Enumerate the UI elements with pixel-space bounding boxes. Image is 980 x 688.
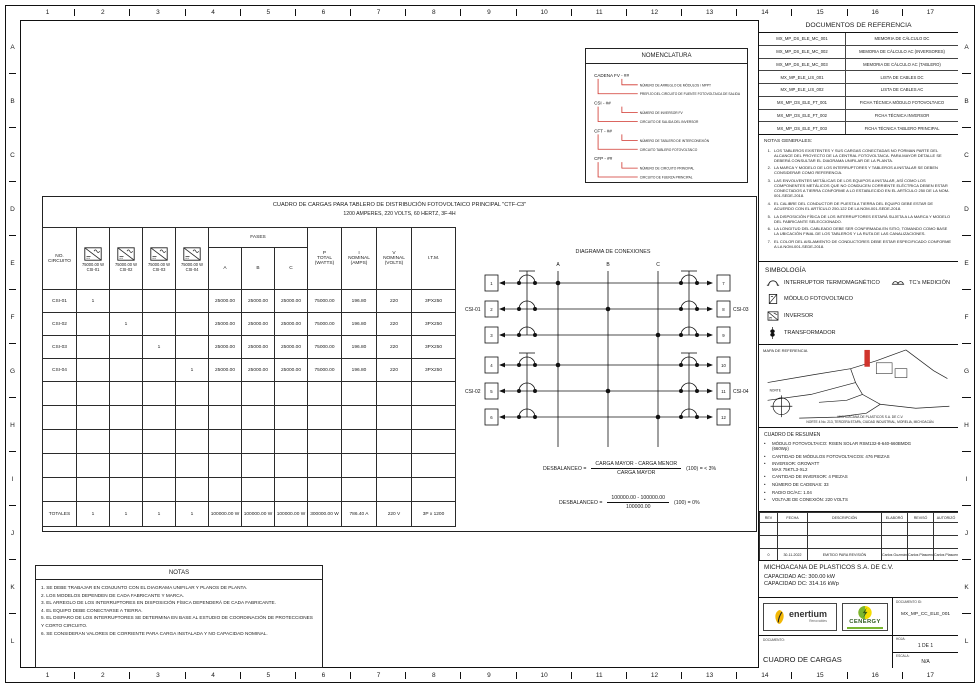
ref-doc-desc: FICHA TÉCNICA INVERSOR <box>846 110 958 122</box>
north-compass-icon: NORTE <box>770 388 793 417</box>
summary-item: •NÚMERO DE CADENAS: 33 <box>764 482 953 488</box>
col-header-itm: I.T.M. <box>412 228 456 290</box>
ref-doc-desc: FICHA TÉCNICA MÓDULO FOTOVOLTAICO <box>846 97 958 109</box>
grid-row-label: I <box>958 452 975 506</box>
empty-row <box>43 454 456 478</box>
empty-cell <box>342 382 377 406</box>
ref-doc-row: MX_MP_DS_ELE_MC_001MEMORIA DE CÁLCULO DC <box>759 33 958 46</box>
general-note: 7.EL COLOR DEL AISLAMIENTO DE CONDUCTORE… <box>764 239 953 249</box>
summary-text: MÓDULO FOTOVOLTAICO: RISEN SOLAR RSM132-… <box>772 441 911 452</box>
symbol-label: INVERSOR <box>784 313 813 319</box>
revision-header: REV <box>760 513 778 523</box>
grid-col-label: 4 <box>186 668 241 683</box>
grid-col-label: 5 <box>241 5 296 20</box>
svg-text:CIRCUITO DE FUERZA PRINCIPAL: CIRCUITO DE FUERZA PRINCIPAL <box>640 176 693 180</box>
sheet-value: 1 DE 1 <box>896 643 955 649</box>
empty-cell <box>209 454 242 478</box>
document-id-value: MX_MP_CC_ELE_001 <box>896 612 955 617</box>
revision-cell: Carlos Plascencia <box>908 549 934 562</box>
document-label: DOCUMENTO: <box>763 638 888 642</box>
empty-cell <box>110 430 143 454</box>
circuit-id: CSI-03 <box>43 336 77 359</box>
value-cell: 3PX250 <box>412 290 456 313</box>
grid-strip-right: ABCDEFGHIJKL <box>958 20 975 668</box>
col-header-fases: FASES <box>209 228 308 248</box>
empty-cell <box>110 382 143 406</box>
totals-inverter: 1 <box>110 502 143 527</box>
empty-cell <box>209 382 242 406</box>
inverter-mark <box>110 290 143 313</box>
empty-cell <box>110 406 143 430</box>
revision-cell <box>882 523 908 536</box>
grid-strip-top: 1234567891011121314151617 <box>20 5 958 20</box>
ref-doc-code: MX_MP_DS_ELE_MC_002 <box>759 46 846 58</box>
svg-text:PREFIJO DEL CIRCUITO DE FUENTE: PREFIJO DEL CIRCUITO DE FUENTE FOTOVOLTA… <box>640 92 741 96</box>
svg-text:CSI-02: CSI-02 <box>465 389 481 395</box>
empty-cell <box>176 406 209 430</box>
inverter-mark: 1 <box>176 359 209 382</box>
map-caption-line1: MICHOACANA DE PLASTICOS S.A. DE C.V. <box>837 415 903 419</box>
inverter-mark <box>143 359 176 382</box>
grid-col-label: 8 <box>406 668 461 683</box>
site-marker-icon <box>864 350 869 367</box>
engineering-drawing-sheet: { "border": { "cols": ["1","2","3","4","… <box>0 0 980 688</box>
ref-doc-row: MX_MP_ELE_LIS_002LISTA DE CABLES AC <box>759 84 958 97</box>
note-item: 5. EL DISPARO DE LOS INTERRUPTORES SE DE… <box>41 614 317 629</box>
empty-cell <box>77 430 110 454</box>
grid-strip-left: ABCDEFGHIJKL <box>5 20 20 668</box>
svg-text:9: 9 <box>722 333 725 338</box>
grid-row-label: A <box>5 20 20 74</box>
revision-header: ELABORÓ <box>882 513 908 523</box>
bullet-icon: • <box>764 441 768 452</box>
ref-doc-row: MX_MP_DS_ELE_FT_003FICHA TÉCNICA TABLERO… <box>759 122 958 135</box>
reference-documents-table: MX_MP_DS_ELE_MC_001MEMORIA DE CÁLCULO DC… <box>759 33 958 135</box>
revision-header: AUTORIZÓ <box>934 513 959 523</box>
svg-text:CSI-01: CSI-01 <box>465 307 481 313</box>
nomenclatura-box: NOMENCLATURA CADENA FV - ##NÚMERO DE ARR… <box>585 48 748 183</box>
symbology-list: INTERRUPTOR TERMOMAGNÉTICOTC's MEDICIÓNM… <box>765 278 952 345</box>
summary-item: •RADIO DC/AC: 1.04 <box>764 490 953 496</box>
ref-doc-code: MX_MP_DS_ELE_FT_001 <box>759 97 846 109</box>
value-cell: 25000.00 <box>275 336 308 359</box>
revision-cell: EMITIDO PARA REVISIÓN <box>808 549 882 562</box>
revision-table: REVFECHADESCRIPCIÓNELABORÓREVISÓAUTORIZÓ… <box>759 512 958 561</box>
revision-cell <box>934 536 959 549</box>
grid-col-label: 10 <box>517 5 572 20</box>
circuit-row: CSI-02125000.0025000.0025000.0075000.001… <box>43 313 456 336</box>
summary-text: INVERSOR: GROWATT MAX 75KTL3-XL2 <box>772 461 819 472</box>
empty-cell <box>176 454 209 478</box>
empty-cell <box>275 382 308 406</box>
circuit-row: CSI-01125000.0025000.0025000.0075000.001… <box>43 290 456 313</box>
enertium-logo: enertium Renovables <box>763 603 837 631</box>
grid-col-label: 3 <box>130 668 185 683</box>
col-header-phase: B <box>242 248 275 290</box>
circuit-id: CSI-01 <box>43 290 77 313</box>
inverter-icon <box>765 311 780 321</box>
ref-doc-code: MX_MP_DS_ELE_FT_003 <box>759 122 846 135</box>
value-cell: 25000.00 <box>209 336 242 359</box>
empty-cell <box>342 454 377 478</box>
empty-cell <box>308 406 342 430</box>
revision-cell <box>778 523 808 536</box>
grid-strip-bottom: 1234567891011121314151617 <box>20 668 958 683</box>
svg-text:NÚMERO DE ARREGLO DE MÓDULOS /: NÚMERO DE ARREGLO DE MÓDULOS / MPPT <box>640 82 711 87</box>
note-item: 4. EL EQUIPO DEBE CONECTARSE A TIERRA. <box>41 607 317 615</box>
ref-doc-code: MX_MP_DS_ELE_MC_003 <box>759 59 846 71</box>
totals-inverter: 1 <box>143 502 176 527</box>
svg-text:4: 4 <box>490 363 493 368</box>
empty-cell <box>412 478 456 502</box>
reference-map-title: MAPA DE REFERENCIA <box>763 348 807 353</box>
logo-row: enertium Renovables CENERGY DOCUMENTO ID… <box>759 598 958 636</box>
svg-text:NÚMERO DE CIRCUITO PRINCIPAL: NÚMERO DE CIRCUITO PRINCIPAL <box>640 166 695 171</box>
grid-col-label: 15 <box>792 5 847 20</box>
ref-doc-desc: MEMORIA DE CÁLCULO DC <box>846 33 958 45</box>
numerator: 100000.00 - 100000.00 <box>607 495 669 503</box>
symbology-section: SIMBOLOGÍA INTERRUPTOR TERMOMAGNÉTICOTC'… <box>759 262 958 345</box>
value-cell: 196.80 <box>342 359 377 382</box>
grid-col-label: 5 <box>241 668 296 683</box>
capacity-dc: CAPACIDAD DC: 314.16 kWp <box>764 581 953 589</box>
value-cell: 220 <box>377 313 412 336</box>
ref-doc-row: MX_MP_DS_ELE_FT_002FICHA TÉCNICA INVERSO… <box>759 110 958 123</box>
empty-cell <box>377 406 412 430</box>
summary-item: •INVERSOR: GROWATT MAX 75KTL3-XL2 <box>764 461 953 472</box>
circuit-id: CSI-02 <box>43 313 77 336</box>
grid-row-label: D <box>958 182 975 236</box>
note-item: 6. SE CONSIDERAN VALORES DE CORRIENTE PA… <box>41 630 317 638</box>
note-text: LA DISPOSICIÓN FÍSICA DE LOS INTERRUPTOR… <box>774 214 953 224</box>
ref-doc-row: MX_MP_DS_ELE_MC_003MEMORIA DE CÁLCULO AC… <box>759 59 958 72</box>
denominator: CARGA MAYOR <box>617 469 655 476</box>
grid-col-label: 15 <box>792 668 847 683</box>
general-note: 6.LA LONGITUD DEL CABLEADO DEBE SER CONF… <box>764 226 953 236</box>
revision-cell: 30-11-2022 <box>778 549 808 562</box>
empty-cell <box>412 406 456 430</box>
totals-value: 300000.00 W <box>308 502 342 527</box>
reference-documents-section: DOCUMENTOS DE REFERENCIA MX_MP_DS_ELE_MC… <box>759 20 958 135</box>
ref-doc-desc: MEMORIA DE CÁLCULO AC (INVERSORES) <box>846 46 958 58</box>
empty-cell <box>242 454 275 478</box>
bullet-icon: • <box>764 461 768 472</box>
inverter-mark <box>176 336 209 359</box>
general-note: 4.EL CALIBRE DEL CONDUCTOR DE PUESTA A T… <box>764 201 953 211</box>
load-table-title: CUADRO DE CARGAS PARA TABLERO DE DISTRIB… <box>43 202 756 208</box>
empty-cell <box>176 430 209 454</box>
empty-cell <box>209 406 242 430</box>
inverter-mark <box>77 359 110 382</box>
ref-doc-desc: FICHA TÉCNICA TABLERO PRINCIPAL <box>846 122 958 135</box>
value-cell: 220 <box>377 336 412 359</box>
company-logos: enertium Renovables CENERGY <box>759 598 892 635</box>
empty-cell <box>308 382 342 406</box>
value-cell: 75000.00 <box>308 359 342 382</box>
revision-header-row: REVFECHADESCRIPCIÓNELABORÓREVISÓAUTORIZÓ <box>760 513 959 523</box>
symbol-item: TRANSFORMADOR <box>765 327 836 339</box>
scale-cell: ESCALA: N/A <box>893 652 958 669</box>
value-cell: 196.80 <box>342 336 377 359</box>
grid-col-label: 13 <box>682 5 737 20</box>
unbalance-calculation: DESBALANCEO = 100000.00 - 100000.00 1000… <box>559 495 700 510</box>
empty-cell <box>43 430 77 454</box>
symbol-item: INVERSOR <box>765 311 813 321</box>
totals-inverter: 1 <box>77 502 110 527</box>
empty-cell <box>377 478 412 502</box>
cenergy-logo: CENERGY <box>842 603 888 631</box>
value-cell: 25000.00 <box>242 290 275 313</box>
svg-text:C: C <box>656 262 660 268</box>
value-cell: 3PX250 <box>412 336 456 359</box>
col-header-inverter: 75000.00 WCSI-04 <box>176 228 209 290</box>
revision-cell <box>808 536 882 549</box>
note-item: 1. SE DEBE TRABAJAR EN CONJUNTO CON EL D… <box>41 584 317 592</box>
grid-col-label: 9 <box>461 668 516 683</box>
notes-title: NOTAS <box>36 566 322 580</box>
grid-row-label: D <box>5 182 20 236</box>
note-text: LAS ENVOLVENTES METÁLICAS DE LOS EQUIPOS… <box>774 178 953 198</box>
empty-cell <box>110 454 143 478</box>
grid-row-label: K <box>5 560 20 614</box>
empty-cell <box>77 454 110 478</box>
grid-row-label: B <box>958 74 975 128</box>
grid-col-label: 12 <box>627 668 682 683</box>
col-header-inverter: 75000.00 WCSI-01 <box>77 228 110 290</box>
svg-text:7: 7 <box>722 281 725 286</box>
grid-col-label: 1 <box>20 668 75 683</box>
inverter-mark <box>143 313 176 336</box>
value-cell: 25000.00 <box>275 359 308 382</box>
symbol-label: TC's MEDICIÓN <box>909 280 950 286</box>
empty-row <box>43 406 456 430</box>
denominator: 100000.00 <box>626 503 651 510</box>
empty-cell <box>77 478 110 502</box>
grid-col-label: 14 <box>737 668 792 683</box>
grid-col-label: 7 <box>351 668 406 683</box>
revision-cell <box>908 536 934 549</box>
col-header-inverter: 75000.00 WCSI-02 <box>110 228 143 290</box>
map-building <box>876 363 892 374</box>
summary-text: RADIO DC/AC: 1.04 <box>772 490 812 496</box>
summary-text: VOLTAJE DE CONEXIÓN: 220 VOLTS <box>772 497 848 503</box>
value-cell: 75000.00 <box>308 313 342 336</box>
value-cell: 25000.00 <box>209 290 242 313</box>
enertium-leaf-icon <box>773 609 786 625</box>
empty-cell <box>43 382 77 406</box>
sheet-label: HOJA: <box>896 637 955 641</box>
totals-inverter: 1 <box>176 502 209 527</box>
titleblock-bottom-row: DOCUMENTO: CUADRO DE CARGAS HOJA: 1 DE 1… <box>759 636 958 668</box>
grid-col-label: 10 <box>517 668 572 683</box>
empty-cell <box>242 430 275 454</box>
load-table-subtitle: 1200 AMPERES, 220 VOLTS, 60 HERTZ, 3F-4H <box>43 211 756 217</box>
document-id-label: DOCUMENTO ID: <box>896 600 955 604</box>
general-notes-list: 1.LOS TABLEROS EXISTENTES Y SUS CARGAS C… <box>764 148 953 250</box>
grid-col-label: 16 <box>848 668 903 683</box>
summary-item: •VOLTAJE DE CONEXIÓN: 220 VOLTS <box>764 497 953 503</box>
summary-item: •MÓDULO FOTOVOLTAICO: RISEN SOLAR RSM132… <box>764 441 953 452</box>
revision-cell: Carlos Guzmán <box>882 549 908 562</box>
empty-row <box>43 382 456 406</box>
svg-text:CSI-03: CSI-03 <box>733 307 749 313</box>
numerator: CARGA MAYOR - CARGA MENOR <box>591 461 681 469</box>
empty-cell <box>308 454 342 478</box>
empty-cell <box>342 478 377 502</box>
general-note: 1.LOS TABLEROS EXISTENTES Y SUS CARGAS C… <box>764 148 953 163</box>
capacity-ac: CAPACIDAD AC: 300.00 kW <box>764 574 953 582</box>
formula-label: DESBALANCEO = <box>543 466 586 472</box>
col-header-inominal: I NOMINAL (AMPS) <box>342 228 377 290</box>
unbalance-formula: DESBALANCEO = CARGA MAYOR - CARGA MENOR … <box>543 461 716 476</box>
note-number: 2. <box>764 165 771 175</box>
formula-result: (100) = 0% <box>674 500 700 506</box>
svg-text:CFP - ##: CFP - ## <box>594 156 613 161</box>
empty-cell <box>176 478 209 502</box>
inverter-mark: 1 <box>110 313 143 336</box>
summary-text: CANTIDAD DE MÓDULOS FOTOVOLTAICOS: 476 P… <box>772 454 890 460</box>
note-text: LA MARCA Y MODELO DE LOS INTERRUPTORES Y… <box>774 165 953 175</box>
empty-cell <box>143 430 176 454</box>
grid-col-label: 12 <box>627 5 682 20</box>
symbol-label: MÓDULO FOTOVOLTAICO <box>784 296 853 302</box>
summary-section: CUADRO DE RESUMEN •MÓDULO FOTOVOLTAICO: … <box>759 428 958 512</box>
grid-col-label: 4 <box>186 5 241 20</box>
grid-row-label: H <box>958 398 975 452</box>
fraction: CARGA MAYOR - CARGA MENOR CARGA MAYOR <box>591 461 681 476</box>
cenergy-sun-icon <box>854 605 876 620</box>
note-number: 5. <box>764 214 771 224</box>
value-cell: 75000.00 <box>308 336 342 359</box>
document-name: CUADRO DE CARGAS <box>763 655 842 664</box>
revision-cell <box>908 523 934 536</box>
reference-map-section: MAPA DE REFERENCIA NORTE <box>759 345 958 428</box>
ref-doc-desc: MEMORIA DE CÁLCULO AC (TABLERO) <box>846 59 958 71</box>
north-label: NORTE <box>770 388 782 392</box>
value-cell: 25000.00 <box>275 313 308 336</box>
bullet-icon: • <box>764 454 768 460</box>
col-header-ptotal: P TOTAL (WATTS) <box>308 228 342 290</box>
bullet-icon: • <box>764 474 768 480</box>
general-note: 3.LAS ENVOLVENTES METÁLICAS DE LOS EQUIP… <box>764 178 953 198</box>
load-schedule-table: NO. CIRCUITO75000.00 WCSI-0175000.00 WCS… <box>42 227 456 527</box>
grid-row-label: E <box>958 236 975 290</box>
project-block: MICHOACANA DE PLASTICOS S.A. DE C.V. CAP… <box>759 561 958 598</box>
note-text: LOS TABLEROS EXISTENTES Y SUS CARGAS CON… <box>774 148 953 163</box>
grid-row-label: G <box>5 344 20 398</box>
grid-col-label: 14 <box>737 5 792 20</box>
reference-map: NORTE MICHOACANA DE PLASTICOS S.A. DE C.… <box>759 345 958 427</box>
pv-module-icon <box>765 293 780 305</box>
empty-row <box>43 430 456 454</box>
svg-text:5: 5 <box>490 389 493 394</box>
circuit-id: CSI-04 <box>43 359 77 382</box>
svg-text:6: 6 <box>490 415 493 420</box>
bullet-icon: • <box>764 490 768 496</box>
col-header-inverter: 75000.00 WCSI-03 <box>143 228 176 290</box>
svg-text:NÚMERO DE TABLERO DE INTERCONE: NÚMERO DE TABLERO DE INTERCONEXIÓN <box>640 138 710 143</box>
grid-row-label: E <box>5 236 20 290</box>
totals-label: TOTALES <box>43 502 77 527</box>
col-header-phase: A <box>209 248 242 290</box>
svg-text:3: 3 <box>490 333 493 338</box>
summary-title: CUADRO DE RESUMEN <box>764 432 953 438</box>
empty-cell <box>143 406 176 430</box>
col-header-circuit: NO. CIRCUITO <box>43 228 77 290</box>
reference-documents-title: DOCUMENTOS DE REFERENCIA <box>759 20 958 33</box>
note-number: 7. <box>764 239 771 249</box>
revision-cell <box>778 536 808 549</box>
note-number: 4. <box>764 201 771 211</box>
value-cell: 3PX250 <box>412 313 456 336</box>
ref-doc-row: MX_MP_ELE_LIS_001LISTA DE CABLES DC <box>759 71 958 84</box>
col-header-vnominal: V NOMINAL (VOLTS) <box>377 228 412 290</box>
symbol-item: TC's MEDICIÓN <box>890 278 950 287</box>
revision-cell <box>760 523 778 536</box>
value-cell: 220 <box>377 359 412 382</box>
value-cell: 25000.00 <box>209 313 242 336</box>
empty-cell <box>110 478 143 502</box>
grid-row-label: B <box>5 74 20 128</box>
nomenclatura-title: NOMENCLATURA <box>586 49 747 64</box>
revision-row: 030-11-2022EMITIDO PARA REVISIÓNCarlos G… <box>760 549 959 562</box>
col-header-phase: C <box>275 248 308 290</box>
empty-cell <box>43 454 77 478</box>
empty-cell <box>209 430 242 454</box>
ref-doc-code: MX_MP_ELE_LIS_002 <box>759 84 846 96</box>
revision-cell: 0 <box>760 549 778 562</box>
empty-cell <box>242 382 275 406</box>
svg-text:A: A <box>556 262 560 268</box>
totals-value: 100000.00 W <box>209 502 242 527</box>
summary-text: CANTIDAD DE INVERSOR: 4 PIEZAS <box>772 474 848 480</box>
inverter-mark <box>176 290 209 313</box>
empty-cell <box>342 430 377 454</box>
document-id-cell: DOCUMENTO ID: MX_MP_CC_ELE_001 <box>892 598 958 635</box>
empty-cell <box>275 430 308 454</box>
note-item: 2. LOS MODELOS DEPENDEN DE CADA FABRICAN… <box>41 592 317 600</box>
grid-col-label: 2 <box>75 5 130 20</box>
symbol-item: MÓDULO FOTOVOLTAICO <box>765 293 853 305</box>
svg-text:CSI - ##: CSI - ## <box>594 101 611 106</box>
symbol-row: MÓDULO FOTOVOLTAICO <box>765 293 952 305</box>
symbol-row: INVERSOR <box>765 311 952 321</box>
value-cell: 25000.00 <box>275 290 308 313</box>
breaker-icon <box>765 278 780 287</box>
svg-text:CADENA FV - ##: CADENA FV - ## <box>594 73 629 78</box>
empty-cell <box>209 478 242 502</box>
revision-header: REVISÓ <box>908 513 934 523</box>
nomenclatura-legend: CADENA FV - ##NÚMERO DE ARREGLO DE MÓDUL… <box>586 64 745 181</box>
revision-cell <box>882 536 908 549</box>
grid-row-label: F <box>5 290 20 344</box>
grid-col-label: 11 <box>572 668 627 683</box>
bullet-icon: • <box>764 482 768 488</box>
empty-cell <box>308 430 342 454</box>
ref-doc-code: MX_MP_ELE_LIS_001 <box>759 71 846 83</box>
notes-list: 1. SE DEBE TRABAJAR EN CONJUNTO CON EL D… <box>36 580 322 637</box>
empty-cell <box>275 478 308 502</box>
sheet-scale-cells: HOJA: 1 DE 1 ESCALA: N/A <box>892 636 958 668</box>
svg-text:B: B <box>606 262 610 268</box>
grid-col-label: 6 <box>296 5 351 20</box>
empty-cell <box>77 382 110 406</box>
ref-doc-row: MX_MP_DS_ELE_MC_002MEMORIA DE CÁLCULO AC… <box>759 46 958 59</box>
value-cell: 25000.00 <box>242 313 275 336</box>
general-notes-title: NOTAS GENERALES: <box>764 139 953 144</box>
empty-cell <box>412 382 456 406</box>
bullet-icon: • <box>764 497 768 503</box>
